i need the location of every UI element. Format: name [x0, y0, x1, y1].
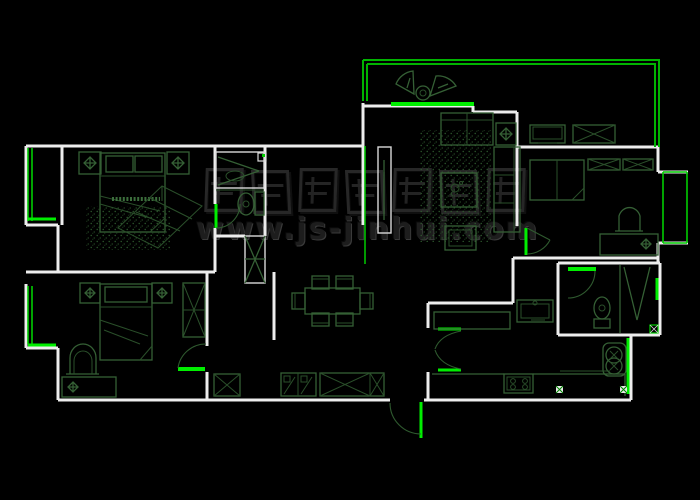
pillow-icon — [106, 156, 133, 172]
chair-icon — [66, 344, 99, 374]
bay-window-second-bedroom — [28, 286, 56, 345]
pillow-icon — [135, 156, 162, 172]
tall-wardrobe-icon — [245, 236, 265, 283]
sink-icon — [517, 300, 553, 322]
tv-console-icon — [378, 147, 391, 233]
shoe-cabinet-icon — [214, 374, 240, 396]
hallway-cabinets — [214, 373, 384, 396]
table-lamp-icon — [157, 288, 167, 298]
shower-area-icon — [624, 267, 650, 320]
walls — [26, 103, 688, 400]
floor-plan-drawing — [0, 0, 700, 500]
table-lamp-icon — [84, 157, 96, 169]
bathroom — [594, 265, 658, 333]
kitchen — [432, 300, 627, 396]
dining-chair-icon — [292, 276, 373, 326]
master-bathroom-door — [216, 204, 240, 228]
second-bedroom — [62, 283, 205, 397]
study-door — [526, 228, 550, 255]
table-lamp-icon — [500, 128, 512, 140]
cabinet-icon — [588, 159, 653, 170]
bay-window-master — [28, 148, 56, 221]
sideboard-icon — [320, 373, 384, 396]
tall-wardrobe-icon — [183, 283, 205, 337]
master-bathroom — [216, 152, 266, 215]
stove-icon — [504, 374, 533, 393]
second-bedroom-door — [178, 344, 206, 369]
master-bedroom — [79, 152, 202, 250]
floor-drain-icon — [556, 386, 627, 393]
tv-icon — [530, 125, 565, 143]
floor-drain-icon — [650, 325, 658, 333]
balcony-table-icon — [416, 86, 430, 100]
balcony-chair-icon — [396, 71, 414, 94]
dining-table-icon — [305, 288, 360, 314]
balcony-chair-icon — [430, 76, 456, 96]
bay-window-study — [663, 172, 687, 243]
toilet-icon — [238, 192, 264, 215]
cabinet-icon — [573, 125, 615, 143]
table-lamp-icon — [85, 288, 95, 298]
kitchen-double-door — [435, 329, 461, 370]
table-lamp-icon — [641, 239, 651, 249]
rug-icon — [420, 130, 492, 242]
desk-icon — [600, 234, 658, 255]
toilet-icon — [594, 297, 610, 328]
dining-area — [292, 276, 373, 326]
shoe-cabinet-icon — [281, 373, 316, 396]
utility-nook — [560, 343, 626, 376]
pillow-icon — [105, 287, 147, 302]
desk-icon — [62, 377, 116, 397]
table-lamp-icon — [172, 157, 184, 169]
rug-icon — [86, 206, 170, 250]
media-cabinets — [530, 125, 615, 143]
cad-floor-plan-screenshot: www.js-jinhui.com — [0, 0, 700, 500]
double-bed-icon — [100, 284, 152, 360]
kitchen-counter-icon — [434, 312, 510, 329]
chair-icon — [615, 208, 643, 231]
table-lamp-icon — [68, 382, 78, 392]
living-room — [378, 113, 520, 250]
entry-door — [390, 402, 421, 438]
bed-window-icon — [530, 160, 584, 200]
side-table-icon — [496, 123, 516, 145]
balcony — [396, 71, 456, 100]
bathroom-door — [568, 269, 596, 298]
